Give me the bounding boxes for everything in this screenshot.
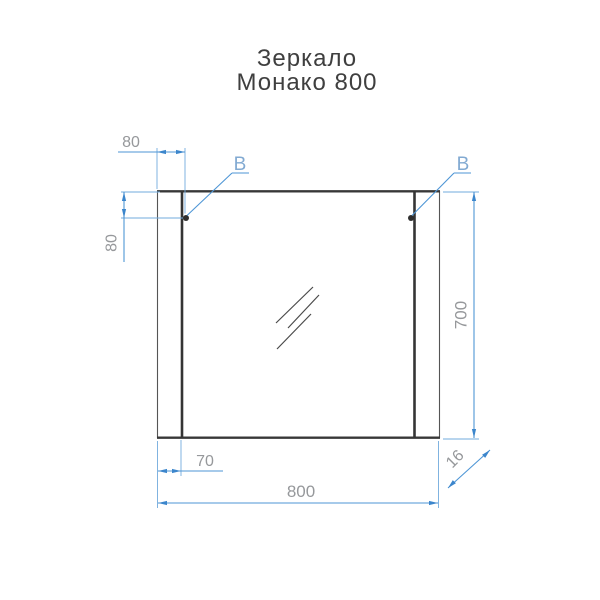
mount-label-right: B (457, 154, 470, 175)
arrowhead-up (472, 192, 476, 201)
mount-label-left: B (234, 154, 247, 175)
dimension-mount-offset-side: 80 (104, 192, 184, 262)
callout-mount-left: B (187, 154, 249, 216)
shine-stroke (277, 314, 311, 349)
arrowhead-right (429, 501, 438, 505)
mounting-points (183, 215, 414, 221)
mount-point-left-dot (183, 215, 189, 221)
leader-line (187, 173, 232, 216)
dimension-depth: 16 (443, 447, 490, 488)
dimension-width: 800 (158, 441, 439, 508)
dimension-mount-offset-top: 80 (118, 134, 185, 214)
dimension-height: 700 (443, 192, 479, 439)
drawing-title: Зеркало Монако 800 (236, 45, 377, 96)
dimension-value-strip-width: 70 (196, 453, 214, 470)
dimension-value-depth: 16 (443, 447, 468, 472)
arrowhead-right (176, 150, 185, 154)
mirror-outline (157, 191, 440, 438)
arrowhead-left (158, 469, 167, 473)
mirror-dimension-drawing: Зеркало Монако 800 B (0, 0, 600, 600)
mount-point-right-dot (408, 215, 414, 221)
callout-mount-right: B (412, 154, 471, 216)
dimension-value-width: 800 (287, 482, 315, 501)
leader-line (412, 173, 454, 216)
dimension-value-height: 700 (452, 301, 471, 329)
shine-stroke (288, 295, 319, 328)
dimension-value-top-offset: 80 (122, 134, 140, 151)
technical-drawing-page: Зеркало Монако 800 B (0, 0, 600, 600)
arrowhead-left (158, 501, 167, 505)
mirror-glass-shine (276, 287, 319, 349)
arrowhead-down (472, 429, 476, 438)
arrowhead-down (122, 209, 126, 218)
dimension-strip-width: 70 (158, 440, 223, 476)
title-line1: Зеркало (257, 45, 357, 72)
arrowhead-up (122, 192, 126, 201)
arrowhead-right (172, 469, 181, 473)
title-line2: Монако 800 (236, 69, 377, 96)
dimension-value-side-offset: 80 (104, 234, 121, 252)
arrowhead-left (157, 150, 166, 154)
